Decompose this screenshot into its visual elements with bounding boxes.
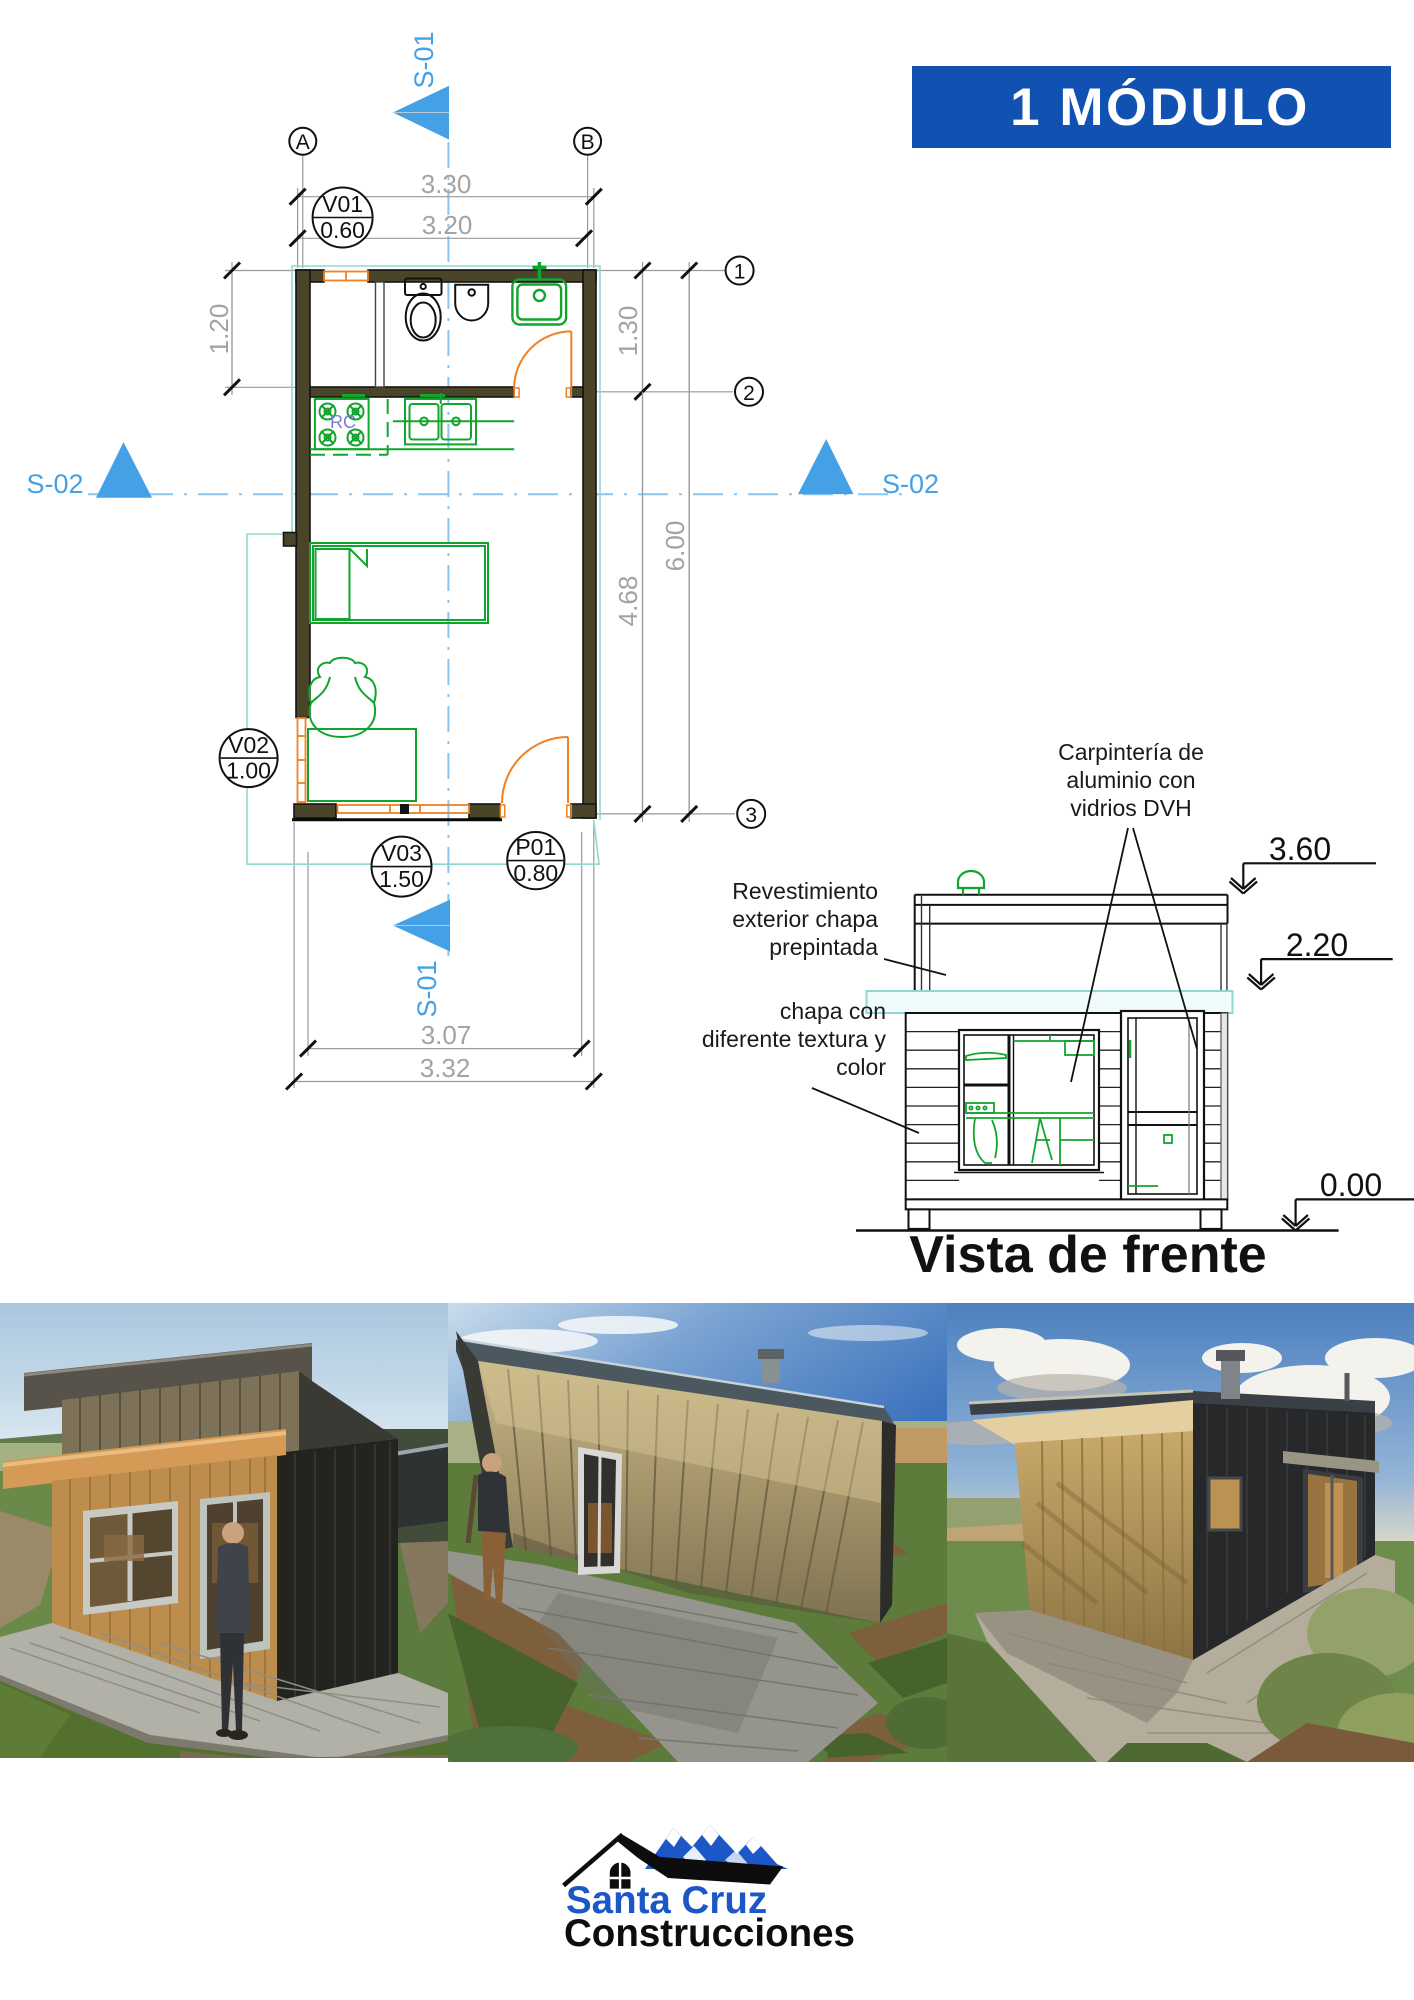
svg-text:Vista de frente: Vista de frente [909, 1226, 1266, 1284]
svg-text:Revestimiento: Revestimiento [732, 878, 878, 904]
svg-text:Construcciones: Construcciones [564, 1912, 855, 1955]
svg-text:6.00: 6.00 [660, 521, 690, 572]
svg-text:3.30: 3.30 [421, 169, 472, 199]
svg-text:S-01: S-01 [409, 31, 439, 88]
svg-text:2.20: 2.20 [1286, 927, 1348, 963]
svg-text:3.60: 3.60 [1269, 831, 1331, 867]
svg-text:S-02: S-02 [26, 469, 83, 499]
svg-text:3.32: 3.32 [420, 1053, 471, 1083]
svg-text:vidrios DVH: vidrios DVH [1070, 795, 1191, 821]
svg-text:P01: P01 [515, 834, 556, 860]
svg-text:V03: V03 [381, 840, 422, 866]
svg-text:0.60: 0.60 [320, 217, 365, 243]
svg-text:3: 3 [745, 804, 757, 827]
svg-text:1.00: 1.00 [226, 758, 271, 784]
svg-text:1: 1 [734, 261, 746, 284]
svg-text:RC: RC [330, 412, 356, 432]
svg-text:A: A [296, 131, 310, 154]
svg-text:Carpintería de: Carpintería de [1058, 739, 1204, 765]
svg-text:1.30: 1.30 [613, 306, 643, 357]
svg-text:2: 2 [743, 382, 755, 405]
svg-text:3.07: 3.07 [421, 1020, 472, 1050]
svg-text:S-01: S-01 [412, 960, 442, 1017]
svg-text:color: color [836, 1054, 886, 1080]
svg-text:1.50: 1.50 [379, 866, 424, 892]
svg-text:chapa con: chapa con [780, 998, 886, 1024]
svg-text:exterior chapa: exterior chapa [732, 906, 878, 932]
svg-text:1.20: 1.20 [204, 304, 234, 355]
svg-text:diferente textura y: diferente textura y [702, 1026, 887, 1052]
svg-text:3.20: 3.20 [422, 210, 473, 240]
svg-text:0.00: 0.00 [1320, 1167, 1382, 1203]
svg-text:B: B [581, 131, 595, 154]
svg-text:0.80: 0.80 [513, 860, 558, 886]
svg-text:V02: V02 [228, 732, 269, 758]
svg-text:prepintada: prepintada [769, 934, 878, 960]
svg-text:4.68: 4.68 [613, 576, 643, 627]
svg-text:aluminio con: aluminio con [1066, 767, 1195, 793]
svg-text:1 MÓDULO: 1 MÓDULO [1010, 77, 1310, 137]
svg-text:V01: V01 [322, 191, 363, 217]
svg-text:S-02: S-02 [882, 469, 939, 499]
